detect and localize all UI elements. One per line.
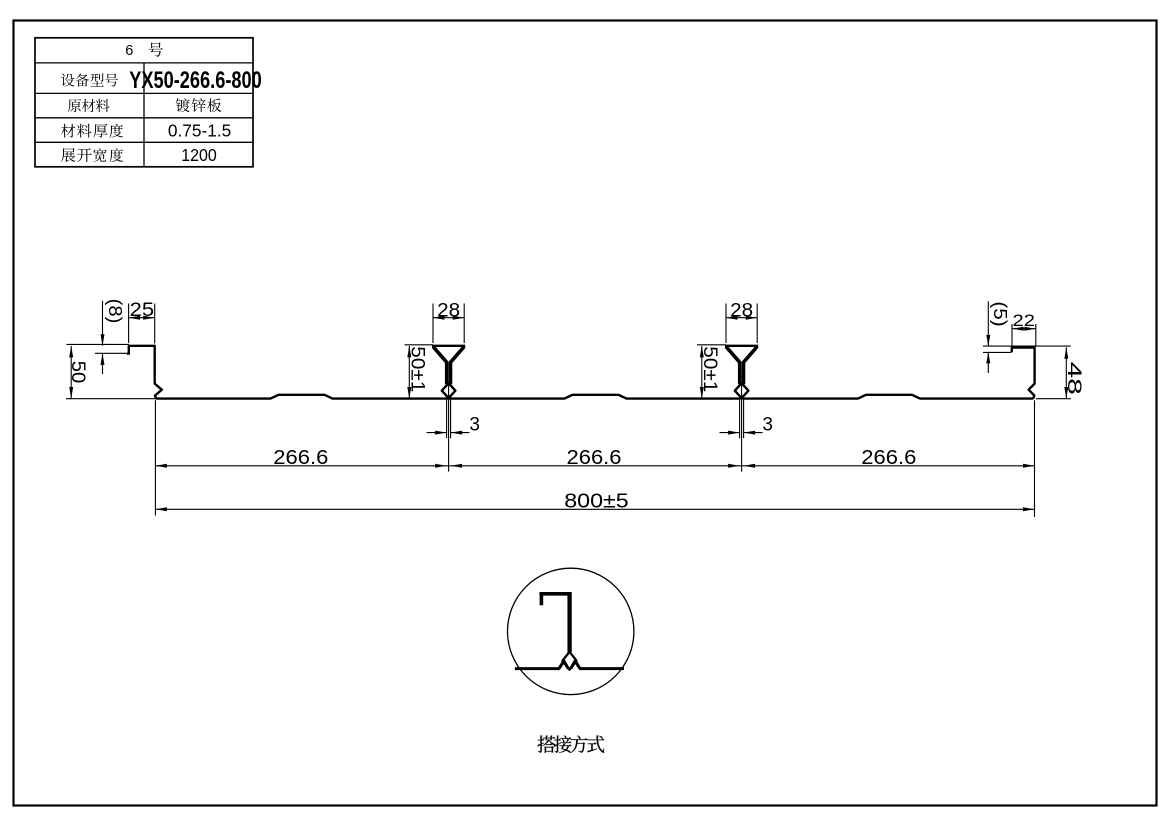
svg-text:3: 3 bbox=[469, 414, 480, 435]
svg-text:25: 25 bbox=[130, 300, 155, 321]
svg-text:6: 6 bbox=[125, 43, 133, 59]
svg-text:1200: 1200 bbox=[181, 145, 217, 165]
svg-text:266.6: 266.6 bbox=[273, 446, 328, 469]
svg-text:266.6: 266.6 bbox=[567, 446, 622, 469]
svg-text:50±1: 50±1 bbox=[699, 346, 720, 392]
svg-text:3: 3 bbox=[762, 414, 773, 435]
svg-text:48: 48 bbox=[1063, 362, 1084, 395]
svg-text:22: 22 bbox=[1013, 311, 1036, 330]
svg-text:50: 50 bbox=[67, 361, 88, 384]
svg-text:800±5: 800±5 bbox=[564, 489, 629, 512]
svg-text:28: 28 bbox=[437, 300, 460, 321]
svg-text:(8): (8) bbox=[105, 299, 125, 324]
svg-text:0.75-1.5: 0.75-1.5 bbox=[168, 121, 231, 141]
svg-text:(5): (5) bbox=[990, 301, 1010, 326]
svg-text:50±1: 50±1 bbox=[407, 346, 428, 392]
svg-text:YX50-266.6-800: YX50-266.6-800 bbox=[129, 67, 262, 94]
svg-text:266.6: 266.6 bbox=[861, 446, 916, 469]
svg-text:28: 28 bbox=[730, 300, 753, 321]
